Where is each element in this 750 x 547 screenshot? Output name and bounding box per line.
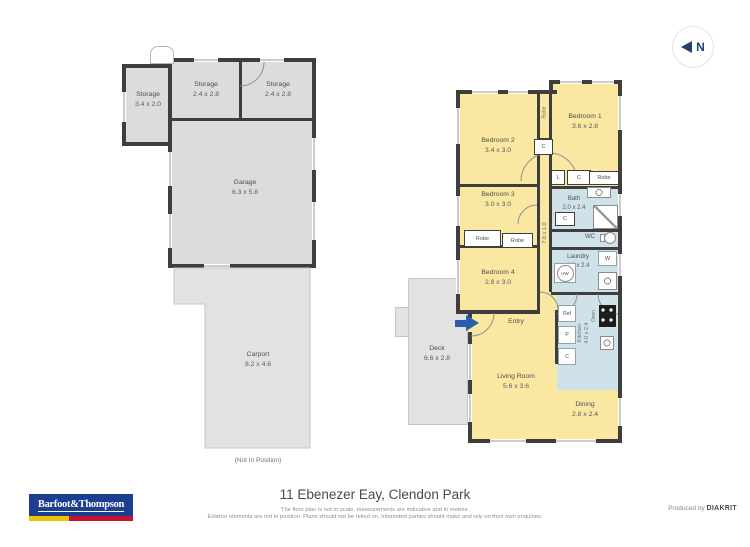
washer-box: W <box>598 251 617 266</box>
window <box>194 58 218 62</box>
garage-label: Garage6.3 x 5.8 <box>200 178 290 198</box>
entry-arrow-head-icon <box>466 315 479 331</box>
property-address: 11 Ebenezer Eay, Clendon Park <box>0 487 750 502</box>
produced-by: Produced by DIAKRIT <box>668 505 737 512</box>
hw-circle: HW <box>557 265 574 282</box>
robe-box: Robe <box>502 233 533 248</box>
wall <box>456 184 540 187</box>
cupboard-box: C <box>558 348 576 365</box>
wall <box>239 60 242 120</box>
window <box>490 439 526 443</box>
wall <box>170 118 314 121</box>
window <box>312 138 316 170</box>
disclaimer-line1: The floor plan is not to scale, measurem… <box>0 507 750 513</box>
robe-box: Robe <box>589 171 619 185</box>
living-room-label: Living Room5.6 x 3.6 <box>476 372 556 392</box>
window <box>312 202 316 240</box>
entry-label: Entry <box>496 317 536 327</box>
oven-label: Oven <box>590 302 598 330</box>
window <box>508 90 528 94</box>
closet-box: C <box>555 212 575 226</box>
linen-box: L <box>551 170 565 185</box>
hallway-dims-label: 7.8 x 1.0 <box>541 207 551 259</box>
closet-box: C <box>534 139 553 155</box>
kitchen-sink <box>600 336 614 350</box>
bedroom4-label: Bedroom 42.8 x 3.0 <box>458 268 538 288</box>
storage-left-label: Storage3.4 x 2.0 <box>126 90 170 110</box>
bedroom3-label: Bedroom 33.0 x 3.0 <box>458 190 538 210</box>
north-indicator: N <box>672 26 714 68</box>
window <box>468 394 472 422</box>
fridge-box: Ref <box>558 305 576 322</box>
floor-plan: Storage3.4 x 2.0 Storage2.4 x 2.8 Storag… <box>0 0 750 547</box>
bedroom2-label: Bedroom 23.4 x 3.0 <box>458 136 538 156</box>
window <box>618 398 622 426</box>
carport-label: Carport8.2 x 4.6 <box>215 350 301 370</box>
toilet-cistern <box>600 234 605 242</box>
vanity-sink <box>587 187 611 198</box>
window <box>468 344 472 380</box>
storage-middle-label: Storage2.4 x 2.8 <box>173 80 239 100</box>
kitchen-label: Kitchen4.0 x 2.4 <box>577 303 591 363</box>
window <box>618 254 622 276</box>
wall <box>551 292 622 295</box>
wall <box>551 247 622 250</box>
bedroom1-label: Bedroom 13.6 x 2.8 <box>551 112 619 132</box>
robe-box: Robe <box>464 230 501 247</box>
north-label: N <box>696 40 705 54</box>
plan-linework <box>0 0 750 547</box>
cooktop <box>599 305 616 327</box>
deck-step <box>395 307 409 337</box>
window <box>472 90 498 94</box>
roof-detail <box>150 46 174 64</box>
toilet <box>604 232 616 244</box>
window <box>560 80 582 84</box>
producer-name: DIAKRIT <box>707 505 738 512</box>
dining-label: Dining2.8 x 2.4 <box>560 400 610 420</box>
window <box>204 264 230 268</box>
storage-right-label: Storage2.4 x 2.8 <box>244 80 312 100</box>
hot-water-cylinder: HW <box>554 263 576 283</box>
window <box>618 194 622 216</box>
closet-box: C <box>567 170 591 185</box>
pantry-box: P <box>558 326 576 344</box>
window <box>260 58 284 62</box>
north-arrow-icon <box>681 41 692 53</box>
not-in-position-note: (Not In Position) <box>200 457 316 464</box>
wall <box>456 310 540 314</box>
window <box>592 80 614 84</box>
shower <box>593 205 618 229</box>
window <box>556 439 596 443</box>
deck-label: Deck6.6 x 2.8 <box>410 344 464 364</box>
window <box>168 152 172 186</box>
disclaimer-line2: Exterior elements are not in position. P… <box>0 514 750 520</box>
robe-strip-label: Robe <box>541 95 550 131</box>
window <box>168 214 172 248</box>
washing-machine <box>598 272 617 290</box>
